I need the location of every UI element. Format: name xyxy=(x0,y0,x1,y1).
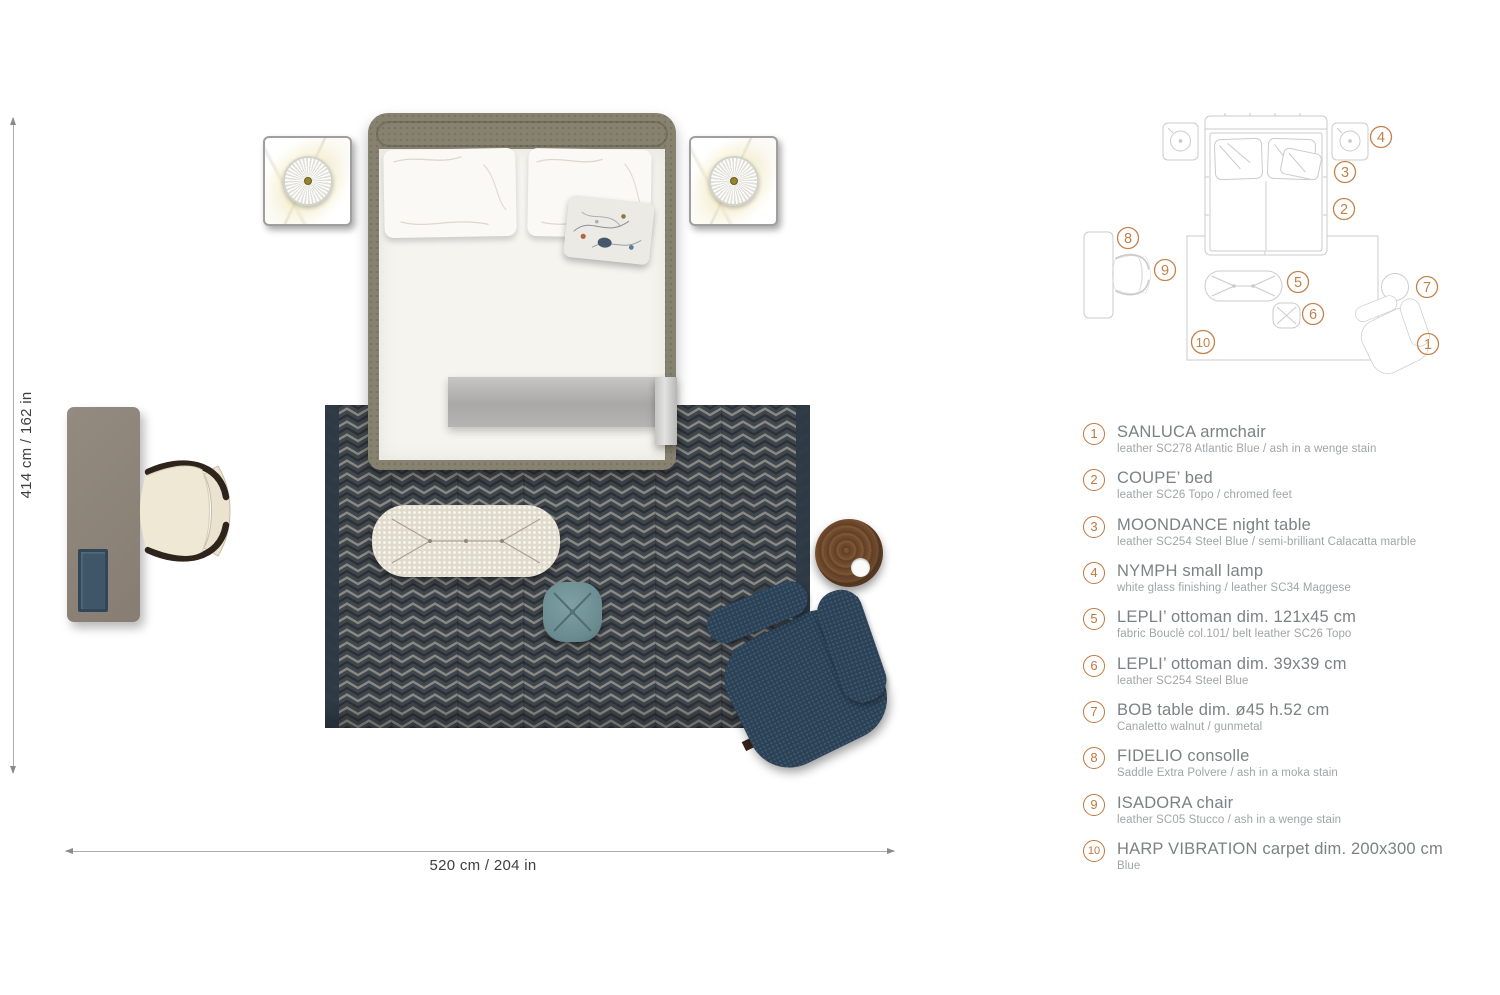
console-tray xyxy=(78,549,108,612)
dimension-line-horizontal xyxy=(66,851,894,852)
legend-item: 8 FIDELIO consolle Saddle Extra Polvere … xyxy=(1083,747,1483,779)
legend-num-circle: 3 xyxy=(1083,516,1105,538)
schematic-nightstand-left xyxy=(1163,123,1198,160)
schematic-ottoman-large xyxy=(1205,271,1282,301)
legend-subtitle: leather SC26 Topo / chromed feet xyxy=(1117,489,1292,501)
legend-item: 10 HARP VIBRATION carpet dim. 200x300 cm… xyxy=(1083,840,1483,872)
dim-arrow-right xyxy=(887,848,895,854)
legend-subtitle: Blue xyxy=(1117,860,1443,872)
carpet-border-left xyxy=(325,405,339,728)
nightstand-left xyxy=(263,136,352,226)
svg-text:8: 8 xyxy=(1124,231,1132,247)
dimension-label-horizontal: 520 cm / 204 in xyxy=(403,857,563,874)
legend-subtitle: fabric Bouclè col.101/ belt leather SC26… xyxy=(1117,628,1356,640)
dimension-line-vertical xyxy=(13,118,14,773)
svg-text:10: 10 xyxy=(1196,335,1210,350)
legend-title: HARP VIBRATION carpet dim. 200x300 cm xyxy=(1117,840,1443,858)
lepli-ottoman-small xyxy=(543,582,602,642)
legend-item: 2 COUPE’ bed leather SC26 Topo / chromed… xyxy=(1083,469,1483,501)
lamp-center-dot xyxy=(730,177,738,185)
svg-text:9: 9 xyxy=(1161,263,1169,279)
svg-text:7: 7 xyxy=(1423,280,1431,296)
svg-text:3: 3 xyxy=(1341,165,1349,181)
schematic-nightstand-right xyxy=(1332,123,1368,160)
legend-title: LEPLI’ ottoman dim. 121x45 cm xyxy=(1117,608,1356,626)
legend-num-circle: 1 xyxy=(1083,423,1105,445)
bob-table-hole xyxy=(851,558,870,577)
lepli-ottoman-large xyxy=(372,505,560,577)
legend-subtitle: leather SC05 Stucco / ash in a wenge sta… xyxy=(1117,814,1341,826)
schematic-armchair xyxy=(1348,282,1442,379)
dim-arrow-left xyxy=(65,848,73,854)
svg-text:1: 1 xyxy=(1424,337,1432,353)
headboard-stitch xyxy=(376,121,668,147)
legend-num-circle: 5 xyxy=(1083,608,1105,630)
svg-text:2: 2 xyxy=(1340,202,1348,218)
legend-subtitle: Saddle Extra Polvere / ash in a moka sta… xyxy=(1117,767,1338,779)
schematic-console xyxy=(1084,232,1113,318)
legend-title: ISADORA chair xyxy=(1117,794,1341,812)
legend-num-circle: 6 xyxy=(1083,655,1105,677)
svg-text:5: 5 xyxy=(1294,275,1302,291)
schematic-chair xyxy=(1113,255,1151,295)
runner-buckle xyxy=(655,377,677,445)
legend-title: COUPE’ bed xyxy=(1117,469,1292,487)
legend-item: 3 MOONDANCE night table leather SC254 St… xyxy=(1083,516,1483,548)
legend-title: NYMPH small lamp xyxy=(1117,562,1351,580)
dim-arrow-down xyxy=(10,766,16,774)
pillow-left xyxy=(383,148,517,238)
svg-text:4: 4 xyxy=(1377,130,1385,146)
legend-subtitle: leather SC254 Steel Blue / semi-brillian… xyxy=(1117,536,1416,548)
legend-subtitle: leather SC278 Atlantic Blue / ash in a w… xyxy=(1117,443,1376,455)
legend-subtitle: white glass finishing / leather SC34 Mag… xyxy=(1117,582,1351,594)
schematic-bed xyxy=(1205,113,1327,255)
schematic-plan: 4 3 2 8 9 10 5 6 7 1 xyxy=(1060,95,1460,380)
legend-subtitle: leather SC254 Steel Blue xyxy=(1117,675,1347,687)
legend-item: 5 LEPLI’ ottoman dim. 121x45 cm fabric B… xyxy=(1083,608,1483,640)
floral-cushion xyxy=(563,195,655,266)
nymph-lamp-left xyxy=(283,156,333,206)
legend-item: 7 BOB table dim. ø45 h.52 cm Canaletto w… xyxy=(1083,701,1483,733)
legend-item: 1 SANLUCA armchair leather SC278 Atlanti… xyxy=(1083,423,1483,455)
furniture-layout-sheet: 414 cm / 162 in 520 cm / 204 in xyxy=(0,0,1500,995)
fidelio-console xyxy=(67,407,140,622)
legend-item: 9 ISADORA chair leather SC05 Stucco / as… xyxy=(1083,794,1483,826)
legend-title: FIDELIO consolle xyxy=(1117,747,1338,765)
legend-num-circle: 8 xyxy=(1083,747,1105,769)
legend-item: 6 LEPLI’ ottoman dim. 39x39 cm leather S… xyxy=(1083,655,1483,687)
legend-num-circle: 10 xyxy=(1083,840,1105,862)
dimension-label-vertical: 414 cm / 162 in xyxy=(18,360,38,530)
legend-num-circle: 7 xyxy=(1083,701,1105,723)
lamp-center-dot xyxy=(304,177,312,185)
legend-title: LEPLI’ ottoman dim. 39x39 cm xyxy=(1117,655,1347,673)
legend-title: MOONDANCE night table xyxy=(1117,516,1416,534)
legend-title: SANLUCA armchair xyxy=(1117,423,1376,441)
legend-num-circle: 4 xyxy=(1083,562,1105,584)
dim-arrow-up xyxy=(10,117,16,125)
legend-title: BOB table dim. ø45 h.52 cm xyxy=(1117,701,1329,719)
floor-plan: 414 cm / 162 in 520 cm / 204 in xyxy=(0,0,960,995)
isadora-chair xyxy=(134,448,234,574)
legend-item: 4 NYMPH small lamp white glass finishing… xyxy=(1083,562,1483,594)
legend-subtitle: Canaletto walnut / gunmetal xyxy=(1117,721,1329,733)
nymph-lamp-right xyxy=(709,156,759,206)
nightstand-right xyxy=(689,136,778,226)
svg-text:6: 6 xyxy=(1309,307,1317,323)
bed-runner xyxy=(448,377,658,427)
schematic-ottoman-small xyxy=(1273,303,1300,328)
legend-num-circle: 2 xyxy=(1083,469,1105,491)
legend-num-circle: 9 xyxy=(1083,794,1105,816)
